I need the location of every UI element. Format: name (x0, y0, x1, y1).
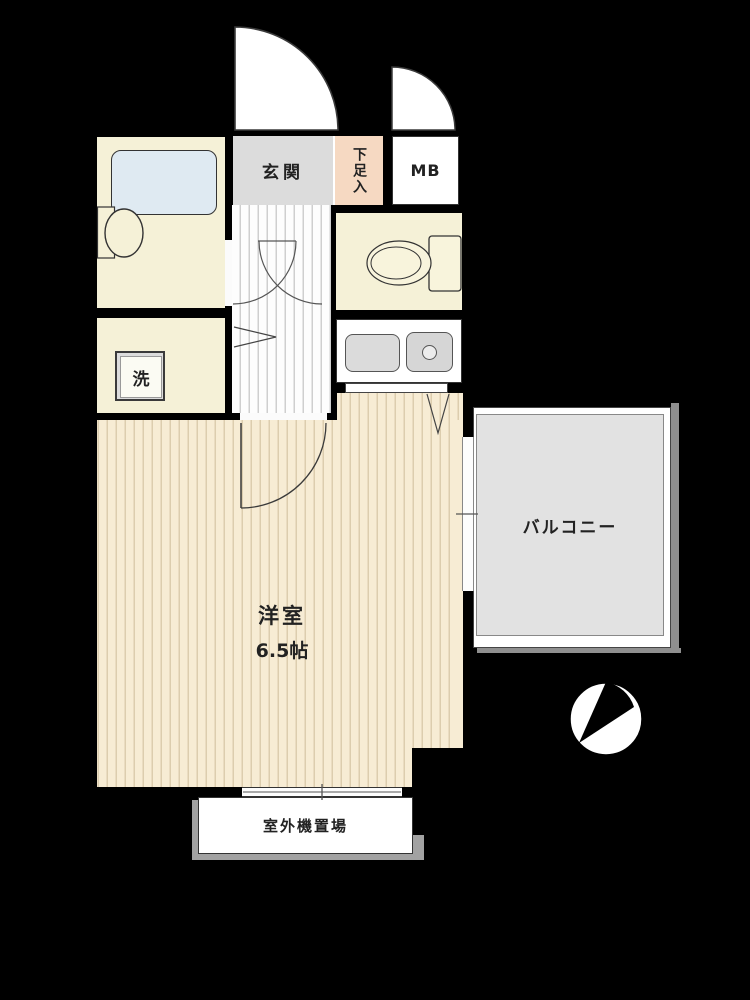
meter-box: MB (392, 136, 459, 205)
balcony-shadow-bottom (477, 648, 681, 653)
bottom-window (242, 787, 402, 797)
shoe-cabinet: 下足入 (333, 136, 383, 205)
balcony: バルコニー (473, 407, 671, 648)
kitchen-sink-icon (345, 334, 400, 372)
floor-plan: 洗 玄関 下足入 MB 洋室 6.5帖 バルコニー (0, 0, 750, 1000)
western-room-name: 洋室 (192, 600, 372, 630)
bathroom (97, 137, 225, 308)
entrance-label: 玄関 (262, 158, 304, 183)
kitchen-ledge (345, 383, 448, 393)
outdoor-unit-label: 室外機置場 (263, 815, 348, 836)
meter-box-door-swing-icon (392, 67, 455, 130)
outdoor-unit-area: 室外機置場 (198, 797, 413, 854)
corridor (232, 205, 331, 413)
stove-icon (406, 332, 453, 372)
western-room (97, 420, 463, 748)
balcony-window (462, 437, 474, 591)
western-room-size: 6.5帖 (192, 636, 372, 663)
washer-box: 洗 (115, 351, 165, 401)
stove-burner-icon (422, 345, 437, 360)
kitchen (336, 319, 462, 383)
laundry-label: 洗 (133, 365, 150, 390)
outdoor-unit-shadow-bottom (192, 853, 424, 860)
entrance-door-swing-icon (235, 27, 338, 130)
toilet-room (336, 213, 462, 310)
bathtub-icon (111, 150, 217, 215)
north-compass-icon (570, 682, 643, 756)
balcony-label: バルコニー (523, 513, 618, 538)
washer-box-inner: 洗 (120, 356, 162, 398)
western-room-upper (337, 393, 463, 420)
corridor-room-opening (240, 413, 327, 420)
balcony-inner: バルコニー (476, 414, 664, 636)
laundry-room: 洗 (97, 318, 225, 413)
outdoor-unit-shadow-step (412, 835, 424, 860)
shoe-cabinet-label: 下足入 (349, 147, 369, 195)
western-room-lower (97, 748, 412, 787)
western-room-label: 洋室 6.5帖 (192, 600, 372, 663)
meter-box-label: MB (410, 161, 440, 180)
entrance-hall: 玄関 (233, 136, 333, 205)
balcony-shadow-right (671, 403, 679, 650)
